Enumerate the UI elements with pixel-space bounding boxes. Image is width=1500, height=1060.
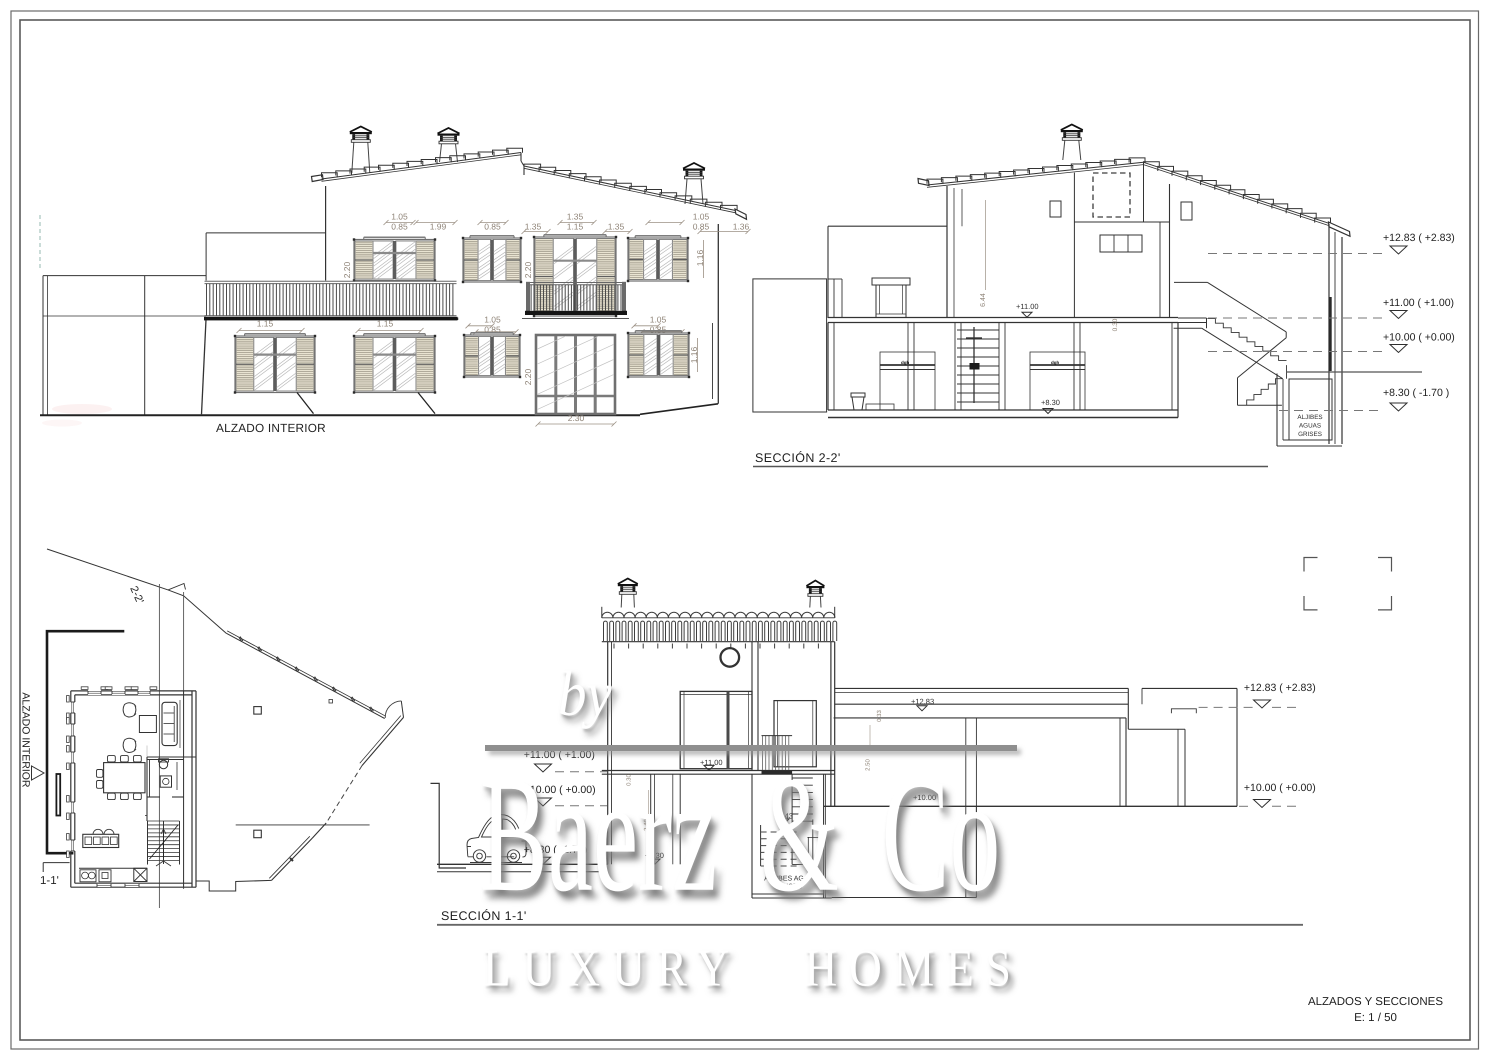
svg-text:1.35: 1.35 xyxy=(608,222,625,232)
svg-text:1.35: 1.35 xyxy=(525,222,542,232)
svg-text:2.20: 2.20 xyxy=(523,368,533,385)
svg-text:+11.00 ( +1.00): +11.00 ( +1.00) xyxy=(1383,297,1454,309)
svg-text:2.20: 2.20 xyxy=(523,261,533,278)
svg-text:1.15: 1.15 xyxy=(567,222,584,232)
svg-text:ALZADO INTERIOR: ALZADO INTERIOR xyxy=(216,421,326,435)
svg-text:GRISES: GRISES xyxy=(1298,431,1322,438)
svg-text:1.05: 1.05 xyxy=(391,212,408,222)
svg-text:0.85: 0.85 xyxy=(391,222,408,232)
svg-text:0.85: 0.85 xyxy=(484,222,501,232)
svg-text:+10.00 ( +0.00): +10.00 ( +0.00) xyxy=(1383,332,1455,344)
svg-text:1.99: 1.99 xyxy=(430,222,447,232)
svg-text:+12.83: +12.83 xyxy=(911,697,934,706)
svg-text:+8.30: +8.30 xyxy=(1041,398,1060,407)
svg-text:2.20: 2.20 xyxy=(342,261,352,278)
svg-text:ALJIBES: ALJIBES xyxy=(1297,414,1322,421)
svg-text:1.05: 1.05 xyxy=(693,212,710,222)
svg-text:0.30: 0.30 xyxy=(1112,318,1119,331)
svg-text:0.85: 0.85 xyxy=(693,222,710,232)
svg-text:1.36: 1.36 xyxy=(733,222,750,232)
svg-text:0.33: 0.33 xyxy=(876,710,883,722)
svg-text:dgh: dgh xyxy=(901,360,909,365)
svg-text:+12.83 ( +2.83): +12.83 ( +2.83) xyxy=(1383,232,1455,244)
svg-text:6.44: 6.44 xyxy=(980,293,987,307)
svg-text:1.05: 1.05 xyxy=(484,315,501,325)
svg-text:SECCIÓN 2-2': SECCIÓN 2-2' xyxy=(755,451,841,465)
svg-text:1.35: 1.35 xyxy=(567,212,584,222)
svg-text:+8.30 ( -1.70 ): +8.30 ( -1.70 ) xyxy=(1383,387,1449,399)
svg-text:ALZADOS Y SECCIONES: ALZADOS Y SECCIONES xyxy=(1308,996,1443,1008)
svg-text:dgh: dgh xyxy=(1051,360,1059,365)
svg-text:ALZADO INTERIOR: ALZADO INTERIOR xyxy=(19,692,31,788)
svg-text:1.15: 1.15 xyxy=(257,319,274,329)
svg-text:+12.83 ( +2.83): +12.83 ( +2.83) xyxy=(1244,682,1316,694)
svg-text:1-1': 1-1' xyxy=(40,875,59,887)
svg-text:E: 1 / 50: E: 1 / 50 xyxy=(1354,1012,1397,1024)
svg-text:1.05: 1.05 xyxy=(650,315,667,325)
svg-text:+11.00: +11.00 xyxy=(1016,302,1039,311)
svg-text:+10.00 ( +0.00): +10.00 ( +0.00) xyxy=(1244,782,1316,794)
svg-text:1.15: 1.15 xyxy=(377,319,394,329)
svg-text:AGUAS: AGUAS xyxy=(1299,423,1321,430)
